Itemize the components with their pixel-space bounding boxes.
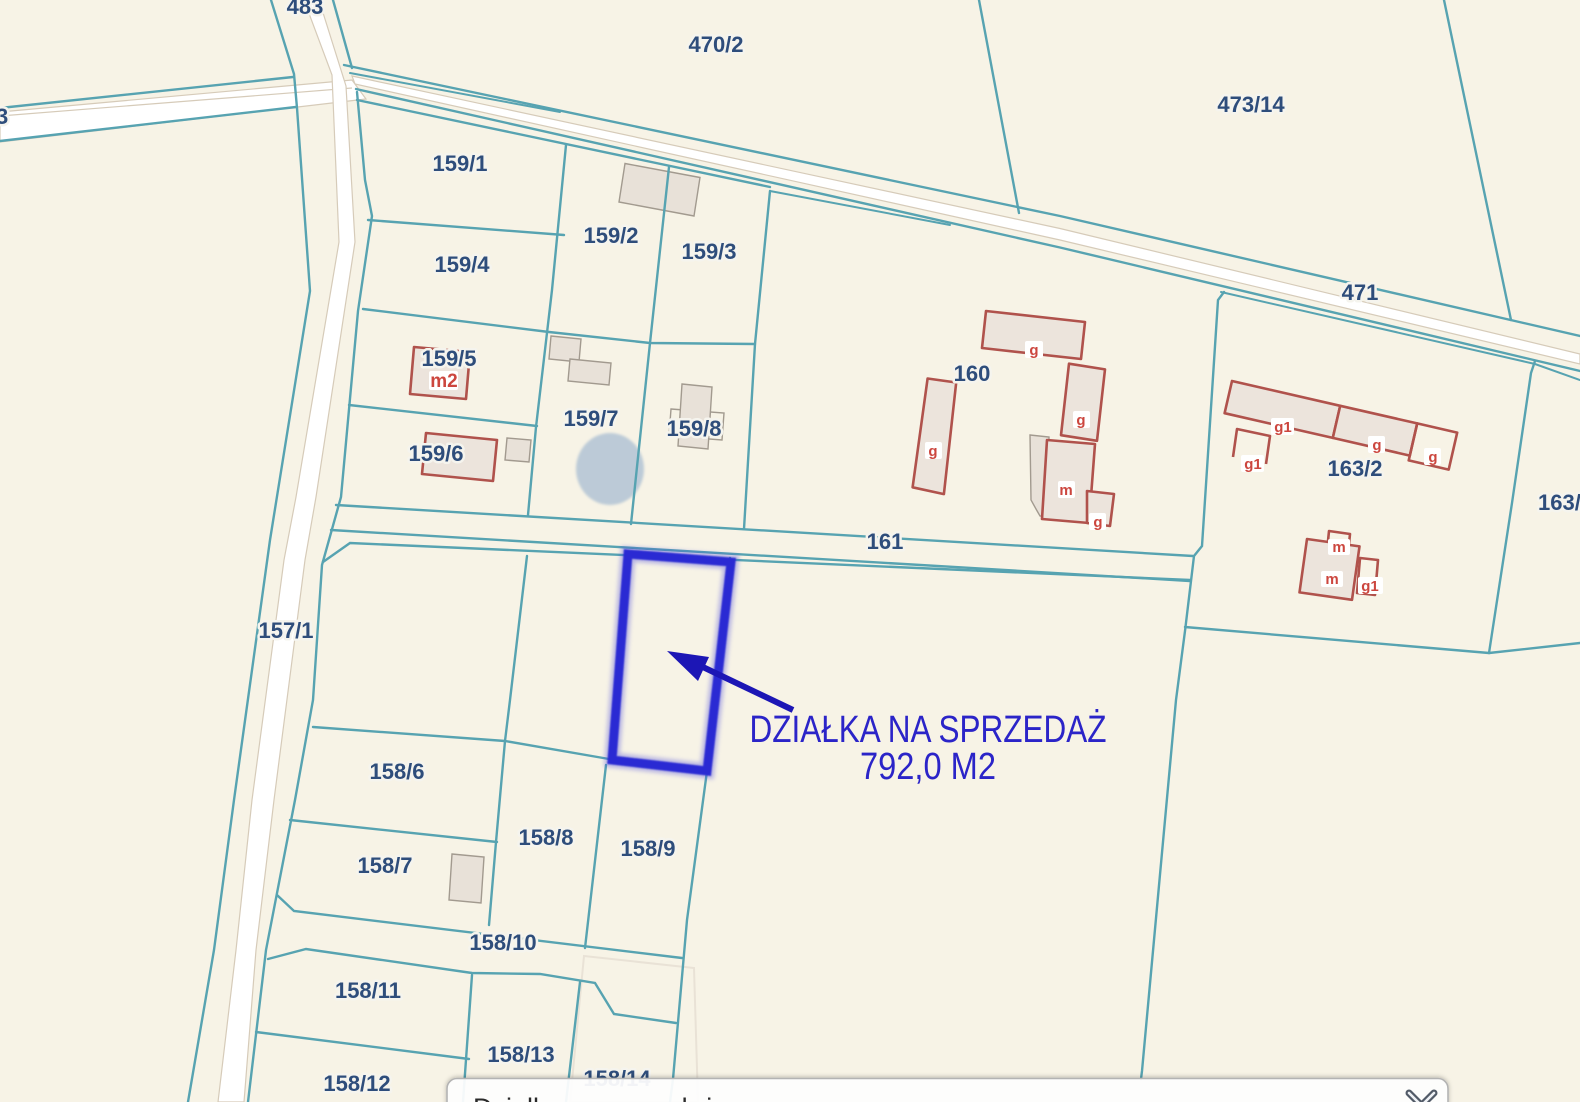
svg-text:470/2: 470/2: [688, 32, 743, 57]
svg-text:m2: m2: [430, 371, 457, 392]
svg-text:160: 160: [954, 361, 991, 386]
svg-text:159/4: 159/4: [434, 252, 490, 277]
svg-text:g: g: [1372, 437, 1381, 454]
svg-text:159/2: 159/2: [583, 223, 638, 248]
svg-text:159/3: 159/3: [681, 239, 736, 264]
svg-text:g: g: [1029, 342, 1038, 359]
svg-text:163/2: 163/2: [1327, 456, 1382, 481]
svg-text:g1: g1: [1274, 419, 1292, 436]
svg-text:473/14: 473/14: [1217, 92, 1285, 117]
svg-text:g: g: [1076, 412, 1085, 429]
svg-text:159/8: 159/8: [666, 416, 721, 441]
svg-text:g: g: [1428, 449, 1437, 466]
svg-text:158/6: 158/6: [369, 759, 424, 784]
svg-text:157/1: 157/1: [258, 618, 313, 643]
svg-text:158/8: 158/8: [518, 825, 573, 850]
svg-text:158/11: 158/11: [335, 978, 401, 1003]
svg-text:Działka na sprzedaż: Działka na sprzedaż: [473, 1093, 716, 1102]
svg-text:158/12: 158/12: [323, 1071, 390, 1096]
svg-text:m: m: [1325, 571, 1338, 588]
svg-text:g1: g1: [1361, 578, 1379, 595]
svg-text:g: g: [928, 443, 937, 460]
svg-text:158/13: 158/13: [487, 1042, 554, 1067]
svg-text:159/1: 159/1: [432, 151, 487, 176]
svg-text:m: m: [1332, 539, 1345, 556]
svg-text:161: 161: [867, 529, 904, 554]
svg-text:159/5: 159/5: [421, 346, 476, 371]
svg-text:g1: g1: [1244, 456, 1262, 473]
svg-text:483: 483: [287, 0, 324, 19]
svg-text:163/: 163/: [1538, 490, 1580, 515]
svg-text:158/10: 158/10: [469, 930, 536, 955]
svg-text:158/9: 158/9: [620, 836, 675, 861]
svg-text:3: 3: [0, 104, 8, 129]
svg-text:g: g: [1093, 514, 1102, 531]
svg-text:158/7: 158/7: [357, 853, 412, 878]
svg-text:m: m: [1059, 482, 1072, 499]
svg-text:DZIAŁKA NA SPRZEDAŻ: DZIAŁKA NA SPRZEDAŻ: [750, 708, 1107, 751]
svg-text:159/7: 159/7: [563, 406, 618, 431]
svg-text:159/6: 159/6: [408, 441, 463, 466]
svg-text:792,0 M2: 792,0 M2: [860, 746, 996, 788]
svg-text:471: 471: [1342, 280, 1379, 305]
